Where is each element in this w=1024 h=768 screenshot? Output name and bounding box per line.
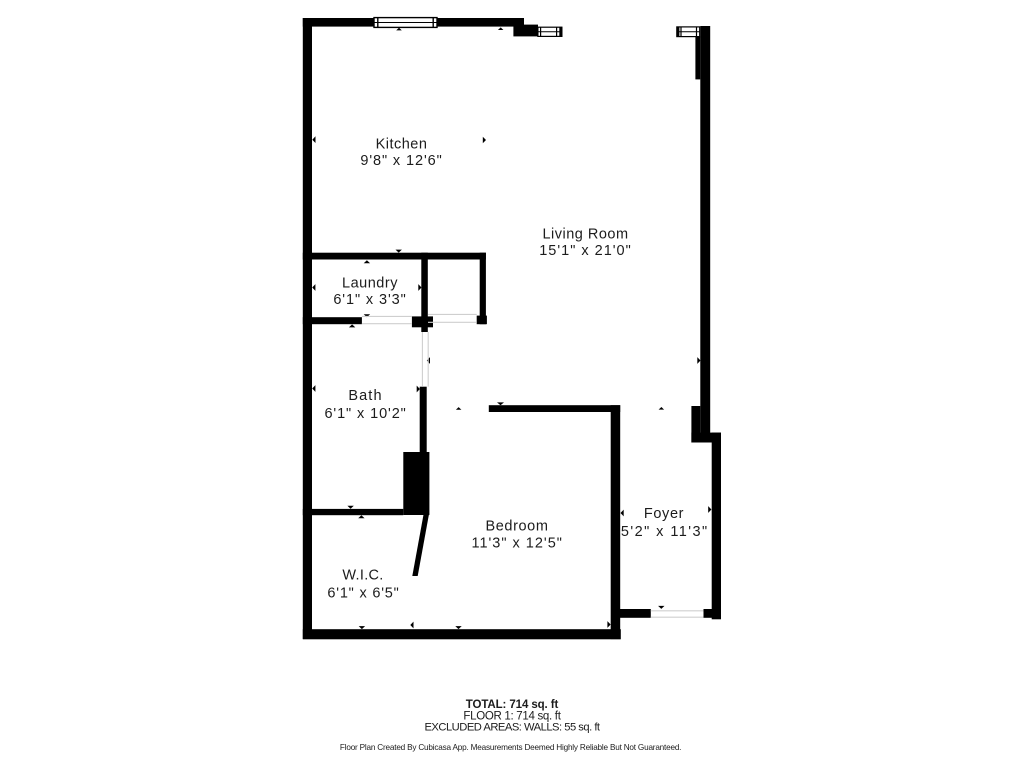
svg-text:Bedroom: Bedroom: [485, 519, 548, 535]
svg-text:Foyer: Foyer: [644, 506, 684, 522]
svg-text:6'1" x 3'3": 6'1" x 3'3": [333, 292, 406, 308]
svg-text:Bath: Bath: [348, 388, 382, 404]
svg-text:Kitchen: Kitchen: [376, 137, 428, 153]
svg-text:W.I.C.: W.I.C.: [342, 567, 383, 583]
svg-text:Laundry: Laundry: [342, 275, 398, 291]
svg-text:EXCLUDED AREAS: WALLS: 55 sq.: EXCLUDED AREAS: WALLS: 55 sq. ft: [424, 721, 600, 733]
svg-text:6'1" x 10'2": 6'1" x 10'2": [324, 406, 406, 422]
svg-text:TOTAL: 714 sq. ft: TOTAL: 714 sq. ft: [466, 699, 559, 711]
svg-text:9'8" x 12'6": 9'8" x 12'6": [360, 153, 442, 169]
svg-text:Floor Plan Created By Cubicasa: Floor Plan Created By Cubicasa App. Meas…: [340, 743, 681, 752]
svg-text:6'1" x 6'5": 6'1" x 6'5": [327, 586, 399, 602]
svg-text:11'3" x 12'5": 11'3" x 12'5": [471, 535, 562, 551]
svg-text:15'1" x 21'0": 15'1" x 21'0": [539, 243, 632, 259]
svg-text:Living Room: Living Room: [542, 226, 628, 242]
svg-text:5'2" x 11'3": 5'2" x 11'3": [621, 524, 709, 540]
